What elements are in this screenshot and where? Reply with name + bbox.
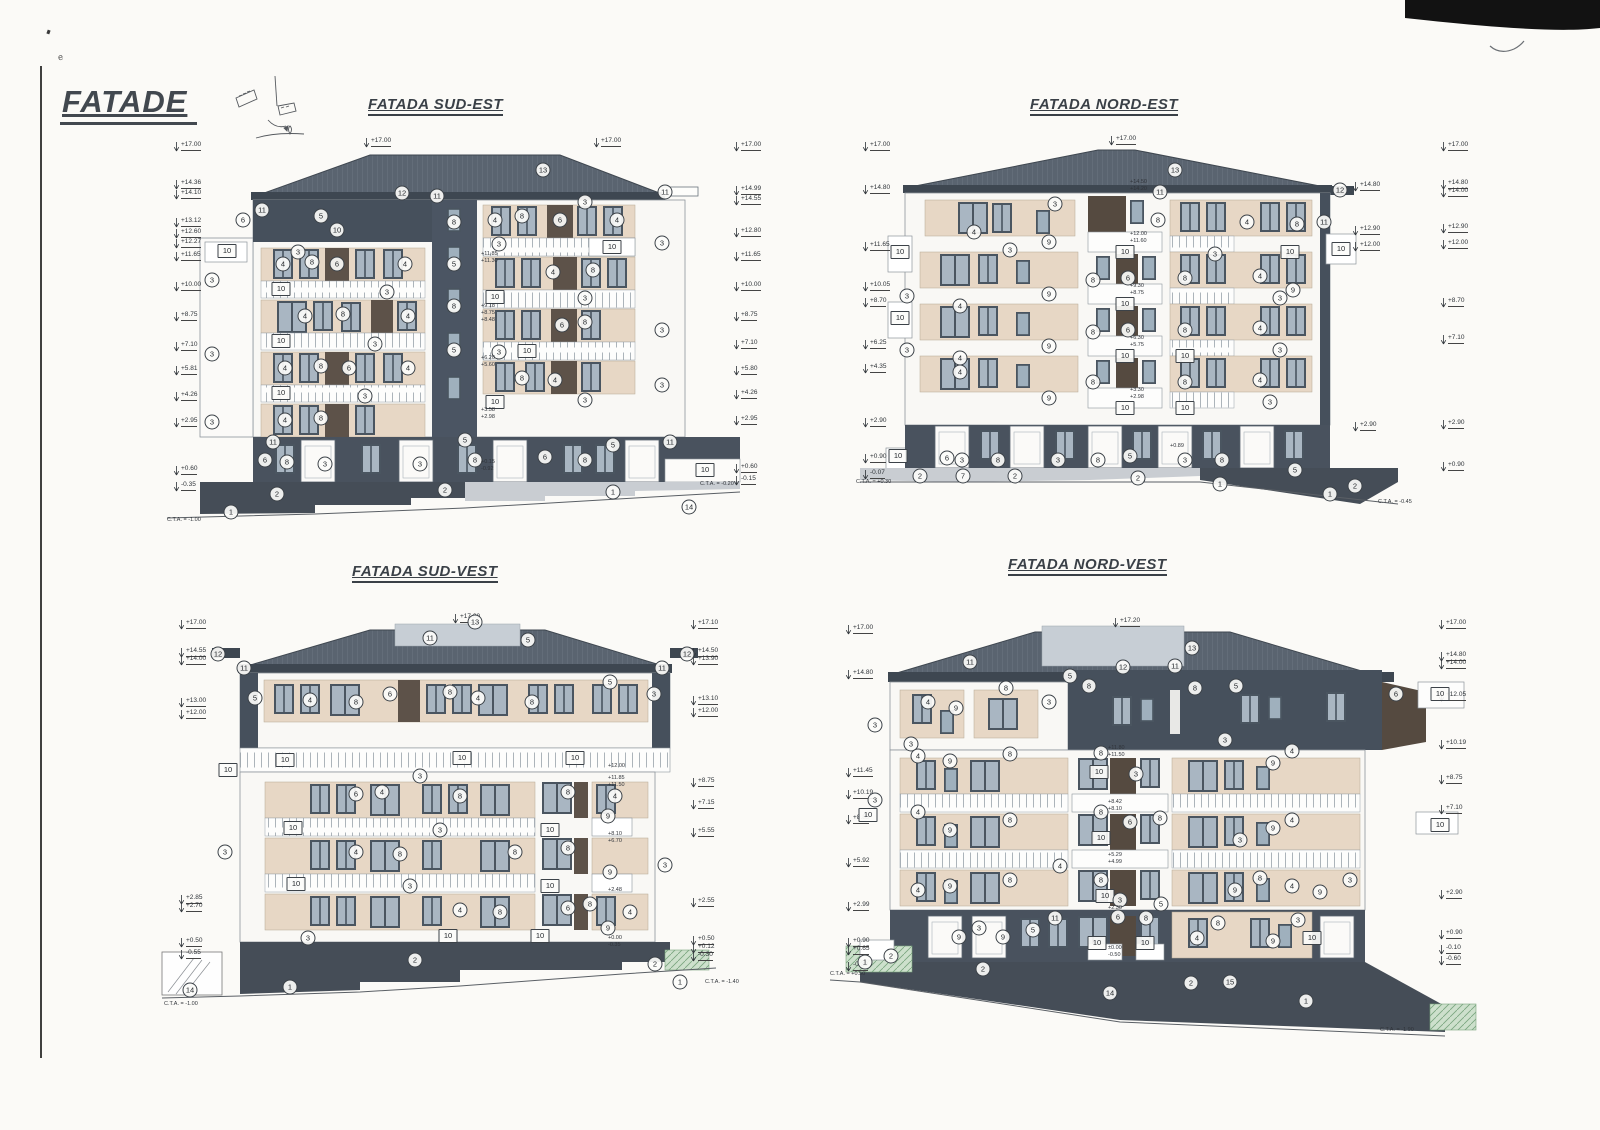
material-callout: 6 <box>553 213 568 228</box>
level-marker: +12.90 <box>1352 226 1380 237</box>
material-callout: 8 <box>1178 323 1193 338</box>
dimension-annotation: +0.89 <box>1170 443 1184 449</box>
level-marker: +11.65 <box>173 252 201 263</box>
level-marker: +12.00 <box>1440 240 1468 251</box>
dimension-annotation: +4.99 <box>1108 859 1122 865</box>
dimension-annotation: +12.00 <box>608 763 625 769</box>
dimension-annotation: +11.30 <box>481 258 498 264</box>
material-callout: 6 <box>538 450 553 465</box>
material-callout: 6 <box>258 453 273 468</box>
level-marker: +2.95 <box>733 416 757 427</box>
material-callout: 10 <box>859 808 878 822</box>
material-callout: 5 <box>1123 449 1138 464</box>
material-callout: 8 <box>1094 873 1109 888</box>
material-callout: 4 <box>398 257 413 272</box>
material-callout: 4 <box>401 361 416 376</box>
material-callout: 10 <box>287 877 306 891</box>
material-callout: 3 <box>1233 833 1248 848</box>
material-callout: 10 <box>1281 245 1300 259</box>
material-callout: 3 <box>900 289 915 304</box>
material-callout: 4 <box>1240 215 1255 230</box>
material-callout: 6 <box>1123 815 1138 830</box>
dimension-annotation: +8.10 <box>608 831 622 837</box>
level-marker: +5.55 <box>690 828 714 839</box>
dimension-annotation: +6.30 <box>1130 335 1144 341</box>
material-callout: 4 <box>303 693 318 708</box>
facade-title-nord-est: FATADA NORD-EST <box>1030 96 1178 116</box>
material-callout: 10 <box>566 751 585 765</box>
facade-annotations-nord-est: +17.00+14.80+11.65+10.05+8.70+6.25+4.35+… <box>840 130 1470 530</box>
material-callout: 4 <box>953 365 968 380</box>
level-marker: +14.80 <box>862 185 890 196</box>
material-callout: 8 <box>525 695 540 710</box>
material-callout: 5 <box>248 691 263 706</box>
material-callout: 4 <box>488 213 503 228</box>
material-callout: 8 <box>1139 911 1154 926</box>
dimension-annotation: +5.75 <box>1130 342 1144 348</box>
material-callout: 10 <box>272 386 291 400</box>
material-callout: 4 <box>953 351 968 366</box>
dimension-annotation: -0.35 <box>608 942 621 948</box>
level-marker: +4.35 <box>862 364 886 375</box>
material-callout: 10 <box>439 929 458 943</box>
material-callout: 8 <box>1003 747 1018 762</box>
level-marker: +5.92 <box>845 858 869 869</box>
material-callout: 8 <box>443 685 458 700</box>
level-marker: +17.00 <box>845 625 873 636</box>
material-callout: 2 <box>438 483 453 498</box>
dimension-annotation: +11.85 <box>608 775 625 781</box>
dimension-annotation: C.T.A. = -1.00 <box>167 517 201 523</box>
material-callout: 10 <box>486 290 505 304</box>
material-callout: 4 <box>1253 269 1268 284</box>
material-callout: 4 <box>1285 879 1300 894</box>
material-callout: 9 <box>601 809 616 824</box>
material-callout: 3 <box>1343 873 1358 888</box>
level-marker: +17.00 <box>733 142 761 153</box>
material-callout: 3 <box>205 415 220 430</box>
material-callout: 10 <box>1116 349 1135 363</box>
material-callout: 10 <box>1332 242 1351 256</box>
level-marker: +17.00 <box>363 138 391 149</box>
material-callout: 10 <box>1116 401 1135 415</box>
material-callout: 11 <box>658 185 673 200</box>
material-callout: 6 <box>940 451 955 466</box>
material-callout: 2 <box>884 949 899 964</box>
material-callout: 10 <box>1116 297 1135 311</box>
material-callout: 1 <box>673 975 688 990</box>
level-marker: +17.00 <box>1108 136 1136 147</box>
material-callout: 4 <box>548 373 563 388</box>
material-callout: 8 <box>515 209 530 224</box>
material-callout: 8 <box>1094 746 1109 761</box>
material-callout: 8 <box>447 215 462 230</box>
dimension-annotation: +8.42 <box>1108 799 1122 805</box>
dimension-annotation: +11.60 <box>1130 238 1147 244</box>
material-callout: 6 <box>349 787 364 802</box>
material-callout: 4 <box>953 299 968 314</box>
level-marker: +5.81 <box>173 366 197 377</box>
material-callout: 12 <box>680 647 695 662</box>
dimension-annotation: +11.50 <box>608 782 625 788</box>
material-callout: 11 <box>655 661 670 676</box>
material-callout: 10 <box>696 463 715 477</box>
material-callout: 13 <box>1168 163 1183 178</box>
material-callout: 1 <box>283 980 298 995</box>
dimension-annotation: +2.30 <box>1108 905 1122 911</box>
dimension-annotation: +3.30 <box>1130 387 1144 393</box>
dimension-annotation: +8.75 <box>481 310 495 316</box>
material-callout: 4 <box>401 309 416 324</box>
level-marker: +2.90 <box>1440 420 1464 431</box>
level-marker: +13.90 <box>690 656 718 667</box>
material-callout: 6 <box>555 318 570 333</box>
material-callout: 8 <box>578 315 593 330</box>
material-callout: 9 <box>952 930 967 945</box>
material-callout: 4 <box>278 361 293 376</box>
material-callout: 3 <box>868 718 883 733</box>
material-callout: 5 <box>1026 923 1041 938</box>
material-callout: 2 <box>408 953 423 968</box>
material-callout: 3 <box>1051 453 1066 468</box>
dimension-annotation: C.T.A. = +0.30 <box>856 479 891 485</box>
material-callout: 5 <box>458 433 473 448</box>
material-callout: 10 <box>1303 931 1322 945</box>
material-callout: 10 <box>1092 831 1111 845</box>
material-callout: 10 <box>1136 936 1155 950</box>
material-callout: 3 <box>413 769 428 784</box>
drawing-sheet: e FATADE FATADA SUD-EST FATADA NORD-EST … <box>0 0 1600 1130</box>
material-callout: 8 <box>447 299 462 314</box>
material-callout: 9 <box>943 754 958 769</box>
level-marker: -0.15 <box>733 476 756 487</box>
level-marker: +14.10 <box>173 190 201 201</box>
material-callout: 4 <box>1053 859 1068 874</box>
level-marker: +17.00 <box>1440 142 1468 153</box>
material-callout: 3 <box>380 285 395 300</box>
material-callout: 4 <box>1285 744 1300 759</box>
facade-sud-est: +17.00+14.36+14.10+13.12+12.60+12.27+11.… <box>165 130 795 530</box>
material-callout: 10 <box>284 821 303 835</box>
material-callout: 5 <box>1154 897 1169 912</box>
level-marker: +2.99 <box>845 902 869 913</box>
level-marker: +17.00 <box>593 138 621 149</box>
material-callout: 4 <box>921 695 936 710</box>
material-callout: 2 <box>1184 976 1199 991</box>
material-callout: 14 <box>1103 986 1118 1001</box>
material-callout: 1 <box>1323 487 1338 502</box>
level-marker: +7.10 <box>733 340 757 351</box>
material-callout: 4 <box>967 225 982 240</box>
material-callout: 1 <box>224 505 239 520</box>
dimension-annotation: C.T.A. = -1.90 <box>1380 1027 1414 1033</box>
material-callout: 12 <box>1116 660 1131 675</box>
level-marker: +2.95 <box>173 418 197 429</box>
level-marker: +5.80 <box>733 366 757 377</box>
level-marker: +12.00 <box>178 710 206 721</box>
level-marker: +7.10 <box>173 342 197 353</box>
material-callout: 8 <box>1086 325 1101 340</box>
material-callout: 3 <box>291 245 306 260</box>
material-callout: 3 <box>433 823 448 838</box>
material-callout: 8 <box>1178 271 1193 286</box>
material-callout: 9 <box>943 823 958 838</box>
level-marker: +6.25 <box>862 340 886 351</box>
material-callout: 9 <box>1266 934 1281 949</box>
level-marker: +17.00 <box>1438 620 1466 631</box>
material-callout: 14 <box>183 983 198 998</box>
material-callout: 10 <box>891 311 910 325</box>
facade-annotations-sud-vest: +17.00+14.55+14.00+13.00+12.00+2.85+2.70… <box>160 590 800 1020</box>
material-callout: 5 <box>606 438 621 453</box>
material-callout: 3 <box>868 793 883 808</box>
facade-title-sud-vest: FATADA SUD-VEST <box>352 563 498 583</box>
material-callout: 10 <box>891 245 910 259</box>
material-callout: 6 <box>236 213 251 228</box>
level-marker: +11.65 <box>862 242 890 253</box>
dimension-annotation: +2.98 <box>481 414 495 420</box>
material-callout: 10 <box>889 449 908 463</box>
material-callout: 4 <box>608 789 623 804</box>
dimension-annotation: +12.00 <box>1130 231 1147 237</box>
dimension-annotation: C.T.A. = -0.45 <box>1378 499 1412 505</box>
material-callout: 4 <box>1285 813 1300 828</box>
level-marker: +17.00 <box>178 620 206 631</box>
material-callout: 1 <box>606 485 621 500</box>
material-callout: 4 <box>375 785 390 800</box>
level-marker: +17.20 <box>1112 618 1140 629</box>
facade-nord-vest: +17.00+14.80+11.45+10.19+8.85+5.92+2.99+… <box>820 590 1480 1040</box>
material-callout: 13 <box>536 163 551 178</box>
material-callout: 9 <box>1266 821 1281 836</box>
material-callout: 8 <box>1091 453 1106 468</box>
material-callout: 10 <box>219 763 238 777</box>
material-callout: 3 <box>1273 343 1288 358</box>
material-callout: 9 <box>1042 287 1057 302</box>
material-callout: 2 <box>1348 479 1363 494</box>
dimension-annotation: C.T.A. = +0.50 <box>830 971 865 977</box>
material-callout: 12 <box>211 647 226 662</box>
material-callout: 3 <box>1129 767 1144 782</box>
material-callout: 10 <box>518 344 537 358</box>
material-callout: 8 <box>586 263 601 278</box>
material-callout: 3 <box>403 879 418 894</box>
level-marker: +2.90 <box>862 418 886 429</box>
material-callout: 8 <box>349 695 364 710</box>
material-callout: 15 <box>1223 975 1238 990</box>
material-callout: 10 <box>453 751 472 765</box>
level-marker: +7.15 <box>690 800 714 811</box>
material-callout: 3 <box>301 931 316 946</box>
material-callout: 9 <box>943 879 958 894</box>
material-callout: 10 <box>1431 818 1450 832</box>
dimension-annotation: +8.48 <box>481 317 495 323</box>
level-marker: +14.80 <box>845 670 873 681</box>
material-callout: 4 <box>298 309 313 324</box>
level-marker: +10.19 <box>1438 740 1466 751</box>
level-marker: +0.60 <box>173 466 197 477</box>
material-callout: 4 <box>1253 321 1268 336</box>
material-callout: 6 <box>330 257 345 272</box>
level-marker: +11.65 <box>733 252 761 263</box>
material-callout: 10 <box>272 282 291 296</box>
material-callout: 5 <box>603 675 618 690</box>
material-callout: 3 <box>1178 453 1193 468</box>
material-callout: 9 <box>601 921 616 936</box>
material-callout: 5 <box>1288 463 1303 478</box>
dimension-annotation: +5.29 <box>1108 852 1122 858</box>
level-marker: -0.55 <box>178 950 201 961</box>
material-callout: 1 <box>1299 994 1314 1009</box>
material-callout: 3 <box>1003 243 1018 258</box>
material-callout: 4 <box>911 883 926 898</box>
level-marker: +7.10 <box>1440 335 1464 346</box>
material-callout: 11 <box>1317 215 1332 230</box>
material-callout: 4 <box>623 905 638 920</box>
material-callout: 8 <box>1178 375 1193 390</box>
level-marker: +12.00 <box>690 708 718 719</box>
material-callout: 9 <box>1286 283 1301 298</box>
material-callout: 10 <box>531 929 550 943</box>
material-callout: 2 <box>1008 469 1023 484</box>
material-callout: 2 <box>913 469 928 484</box>
material-callout: 5 <box>447 343 462 358</box>
material-callout: 8 <box>583 897 598 912</box>
material-callout: 8 <box>453 789 468 804</box>
level-marker: +4.26 <box>173 392 197 403</box>
material-callout: 3 <box>955 453 970 468</box>
material-callout: 8 <box>493 905 508 920</box>
material-callout: 4 <box>453 903 468 918</box>
dimension-annotation: +8.75 <box>1130 290 1144 296</box>
facade-title-nord-vest: FATADA NORD-VEST <box>1008 556 1167 576</box>
material-callout: 4 <box>276 257 291 272</box>
material-callout: 8 <box>1215 453 1230 468</box>
level-marker: +0.50 <box>178 938 202 949</box>
material-callout: 5 <box>1229 679 1244 694</box>
material-callout: 8 <box>561 841 576 856</box>
material-callout: 2 <box>976 962 991 977</box>
material-callout: 3 <box>413 457 428 472</box>
material-callout: 3 <box>1048 197 1063 212</box>
level-marker: +0.90 <box>1440 462 1464 473</box>
dimension-annotation: -0.50 <box>1108 952 1121 958</box>
material-callout: 10 <box>1176 401 1195 415</box>
level-marker: +17.00 <box>862 142 890 153</box>
material-callout: 3 <box>900 343 915 358</box>
material-callout: 11 <box>237 661 252 676</box>
dimension-annotation: +9.18 <box>481 303 495 309</box>
level-marker: +14.00 <box>178 656 206 667</box>
material-callout: 10 <box>272 334 291 348</box>
level-marker: -0.30 <box>690 952 713 963</box>
material-callout: 6 <box>561 901 576 916</box>
level-marker: +17.10 <box>690 620 718 631</box>
material-callout: 10 <box>1116 245 1135 259</box>
material-callout: 2 <box>648 957 663 972</box>
material-callout: 4 <box>911 805 926 820</box>
material-callout: 4 <box>546 265 561 280</box>
material-callout: 1 <box>1213 477 1228 492</box>
material-callout: 3 <box>578 291 593 306</box>
material-callout: 9 <box>996 930 1011 945</box>
material-callout: 3 <box>1263 395 1278 410</box>
material-callout: 8 <box>508 845 523 860</box>
facade-annotations-sud-est: +17.00+14.36+14.10+13.12+12.60+12.27+11.… <box>165 130 795 530</box>
level-marker: +13.00 <box>178 698 206 709</box>
material-callout: 4 <box>911 749 926 764</box>
material-callout: 4 <box>1253 373 1268 388</box>
material-callout: 13 <box>1185 641 1200 656</box>
material-callout: 11 <box>255 203 270 218</box>
material-callout: 10 <box>276 753 295 767</box>
level-marker: +7.10 <box>1438 805 1462 816</box>
material-callout: 8 <box>1211 916 1226 931</box>
facade-title-sud-est: FATADA SUD-EST <box>368 96 503 116</box>
level-marker: +12.27 <box>173 239 201 250</box>
material-callout: 5 <box>1063 669 1078 684</box>
material-callout: 8 <box>578 453 593 468</box>
material-callout: 11 <box>430 189 445 204</box>
material-callout: 10 <box>603 240 622 254</box>
dimension-annotation: +3.58 <box>481 407 495 413</box>
level-marker: +4.26 <box>733 390 757 401</box>
material-callout: 8 <box>1086 273 1101 288</box>
dimension-annotation: -0.92 <box>481 466 494 472</box>
level-marker: +10.00 <box>173 282 201 293</box>
material-callout: 3 <box>368 337 383 352</box>
material-callout: 1 <box>858 955 873 970</box>
dimension-annotation: +0.15 <box>481 459 495 465</box>
level-marker: +8.75 <box>173 312 197 323</box>
dimension-annotation: +2.48 <box>608 887 622 893</box>
material-callout: 6 <box>342 361 357 376</box>
material-callout: 8 <box>1094 805 1109 820</box>
material-callout: 3 <box>658 858 673 873</box>
material-callout: 3 <box>205 273 220 288</box>
material-callout: 9 <box>1042 391 1057 406</box>
material-callout: 3 <box>1208 247 1223 262</box>
material-callout: 5 <box>447 257 462 272</box>
level-marker: +17.00 <box>173 142 201 153</box>
material-callout: 4 <box>278 413 293 428</box>
level-marker: -0.60 <box>1438 956 1461 967</box>
material-callout: 3 <box>578 195 593 210</box>
dimension-annotation: +0.00 <box>608 935 622 941</box>
material-callout: 10 <box>218 244 237 258</box>
pen-mark <box>1488 32 1528 56</box>
dimension-annotation: +14.20 <box>1130 186 1147 192</box>
material-callout: 10 <box>1090 765 1109 779</box>
material-callout: 12 <box>395 186 410 201</box>
facade-annotations-nord-vest: +17.00+14.80+11.45+10.19+8.85+5.92+2.99+… <box>820 590 1480 1040</box>
material-callout: 8 <box>1253 871 1268 886</box>
material-callout: 3 <box>492 237 507 252</box>
material-callout: 11 <box>663 435 678 450</box>
material-callout: 6 <box>1389 687 1404 702</box>
material-callout: 8 <box>1003 813 1018 828</box>
dimension-annotation: C.T.A. = -1.00 <box>164 1001 198 1007</box>
material-callout: 2 <box>1131 471 1146 486</box>
level-marker: +14.80 <box>1352 182 1380 193</box>
material-callout: 10 <box>541 823 560 837</box>
material-callout: 5 <box>521 633 536 648</box>
level-marker: +12.00 <box>1352 242 1380 253</box>
material-callout: 3 <box>972 921 987 936</box>
material-callout: 8 <box>280 455 295 470</box>
material-callout: 10 <box>330 223 345 238</box>
dimension-annotation: +11.80 <box>1108 745 1125 751</box>
